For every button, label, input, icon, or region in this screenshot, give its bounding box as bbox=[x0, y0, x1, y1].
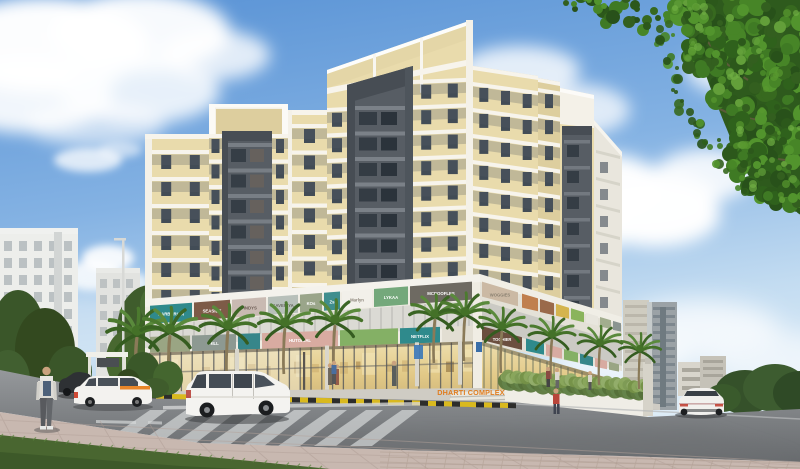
svg-text:HUTORIAL: HUTORIAL bbox=[289, 338, 311, 343]
svg-text:LYKAA: LYKAA bbox=[384, 295, 398, 300]
svg-text:Zs: Zs bbox=[329, 299, 335, 304]
svg-text:KOs: KOs bbox=[307, 301, 316, 306]
svg-text:WOGGIES: WOGGIES bbox=[490, 292, 511, 297]
svg-text:Marlyn: Marlyn bbox=[350, 297, 364, 302]
svg-text:NETFLIX: NETFLIX bbox=[411, 334, 429, 339]
svg-text:DHARTI COMPLEX: DHARTI COMPLEX bbox=[437, 388, 505, 397]
